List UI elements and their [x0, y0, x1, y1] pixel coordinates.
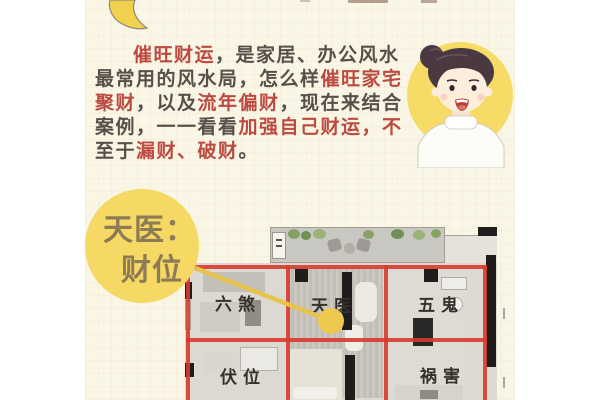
avatar-blush [478, 94, 485, 101]
title-fragment [421, 0, 437, 3]
avatar-blush [441, 94, 448, 101]
plant [413, 230, 425, 240]
sector-label-wugui: 五鬼 [401, 291, 481, 316]
grid-line-vertical [286, 265, 290, 400]
grid-line-horizontal [186, 338, 487, 342]
bed-pillows [293, 387, 337, 399]
intro-line: 聚财，以及流年偏财，现在来结合 [95, 92, 405, 116]
plan-text-tag [272, 232, 286, 259]
sector-label-liusha: 六煞 [198, 290, 278, 315]
woman-avatar [406, 42, 515, 168]
furniture [203, 272, 265, 292]
plant [301, 231, 311, 240]
intro-line: 催旺财运，是家居、办公风水 [95, 44, 405, 68]
plant [363, 230, 374, 239]
avatar-collar [445, 116, 477, 129]
content-area: 催旺财运，是家居、办公风水 最常用的风水局，怎么样催旺家宅 聚财，以及流年偏财，… [85, 0, 515, 400]
grid-line-horizontal [186, 265, 487, 269]
sector-label-tianyi: 天医 [294, 292, 374, 317]
plant [391, 229, 404, 239]
furniture [420, 390, 438, 399]
avatar-shirt [418, 123, 504, 168]
intro-line: 最常用的风水局，怎么样催旺家宅 [95, 68, 405, 92]
avatar-eye [449, 85, 454, 91]
plant [313, 229, 326, 239]
grid-line-vertical [186, 265, 190, 400]
callout-subtitle: 财位 [121, 245, 183, 289]
crescent-moon-icon [102, 0, 160, 34]
intro-line: 至于漏财、破财。 [95, 140, 405, 164]
title-fragment [348, 0, 388, 3]
title-fragment [300, 0, 310, 2]
plant [431, 229, 441, 238]
sector-label-fuwei: 伏位 [203, 363, 283, 388]
floor-plan: 六煞 天医 五鬼 伏位 祸害 [185, 227, 497, 400]
wall-segment [478, 227, 497, 236]
grid-line-vertical [384, 265, 388, 400]
bath-sink [441, 277, 467, 290]
wall-segment [295, 269, 308, 282]
wall-segment [486, 255, 496, 367]
callout-title: 天医： [103, 205, 196, 249]
infographic-page: 催旺财运，是家居、办公风水 最常用的风水局，怎么样催旺家宅 聚财，以及流年偏财，… [0, 0, 600, 400]
dimension-tick [503, 377, 505, 388]
wall-segment [345, 355, 355, 400]
sector-label-huohai: 祸害 [403, 362, 483, 387]
avatar-eye [471, 85, 476, 91]
plant [288, 229, 300, 239]
intro-paragraph: 催旺财运，是家居、办公风水 最常用的风水局，怎么样催旺家宅 聚财，以及流年偏财，… [95, 44, 405, 164]
wall-segment [424, 269, 438, 282]
grid-line-vertical [483, 265, 487, 400]
dimension-tick [503, 308, 505, 319]
avatar-tongue [458, 105, 466, 110]
balcony-table [344, 243, 355, 254]
tianyi-callout-circle: 天医： 财位 [85, 189, 199, 303]
intro-line: 案例，一一看看加强自己财运，不 [95, 116, 405, 140]
